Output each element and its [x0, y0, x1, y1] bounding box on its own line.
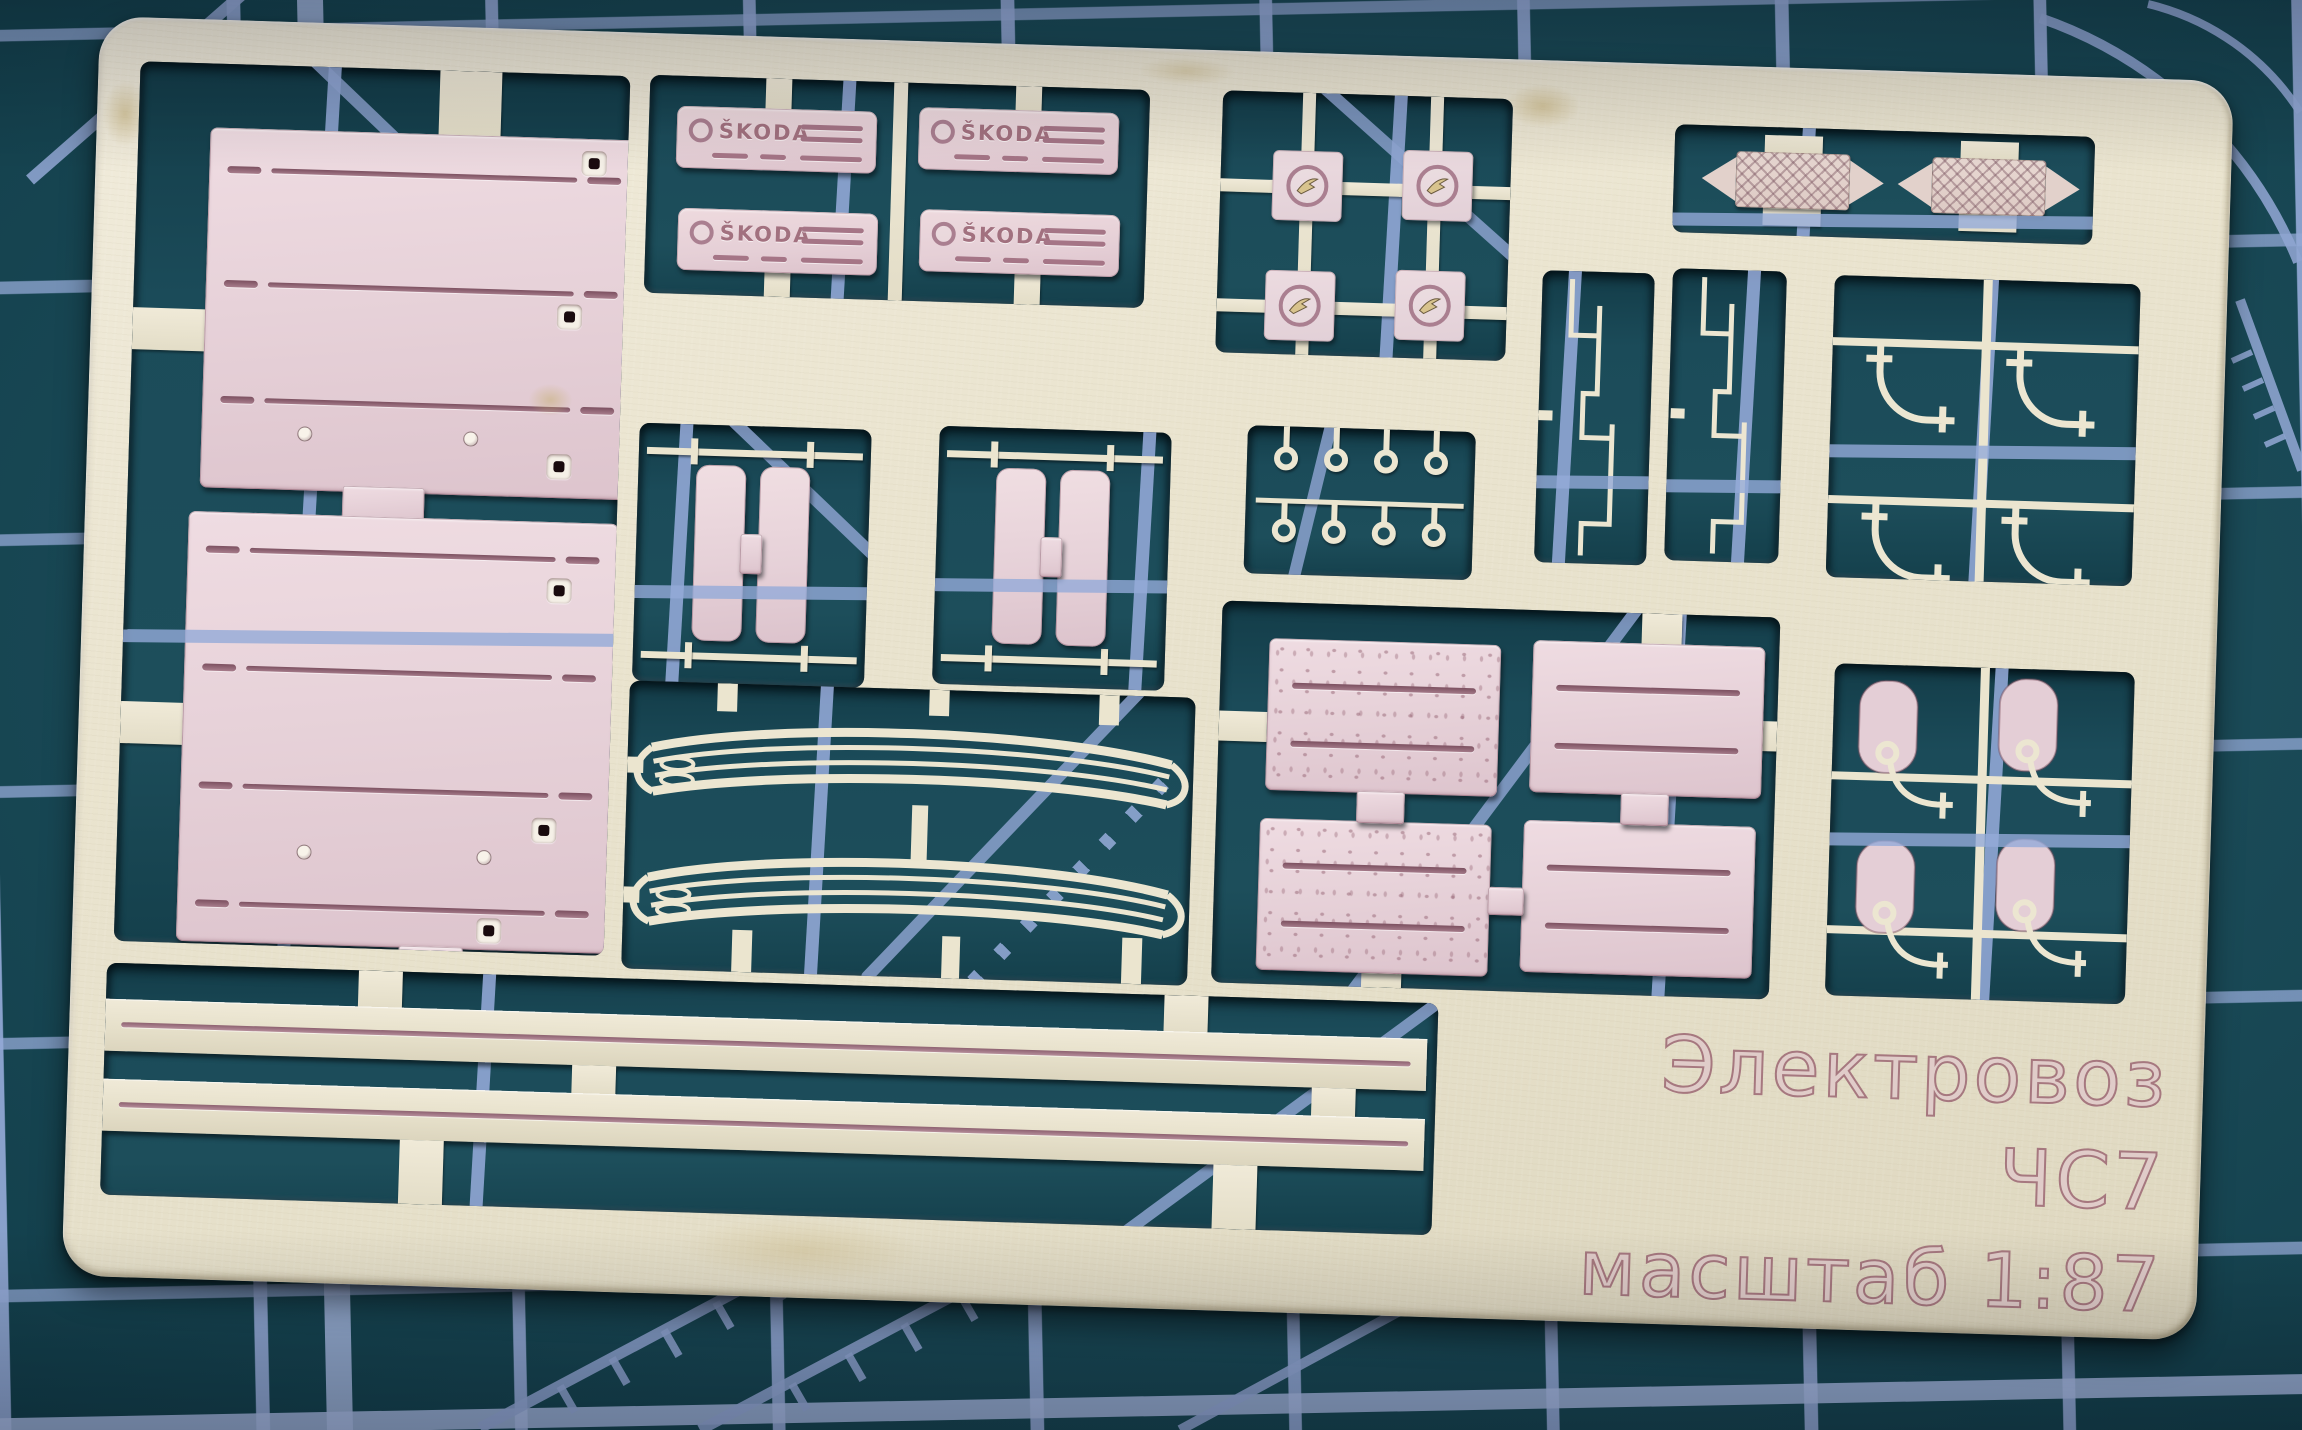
sprue-tick — [684, 642, 692, 668]
cutout-builder-plates: ŠKODA ŠKODA ŠKODA — [644, 75, 1150, 308]
sprue-rail — [947, 450, 1163, 464]
plate-line — [1042, 157, 1104, 164]
cutout-wiper-pads — [1825, 663, 2135, 1004]
sprue-bar — [1975, 280, 1993, 582]
plate-line — [712, 153, 748, 159]
plate-line — [761, 256, 787, 262]
engraving-title: Электровоз ЧС7 масштаб 1:87 — [1461, 1008, 2170, 1335]
sprue-rail — [641, 651, 857, 665]
mat-diagonal-line — [1180, 1300, 1420, 1430]
builder-plate-text: ŠKODA — [718, 119, 811, 146]
sprue-tab — [571, 1065, 616, 1096]
groove-dash — [202, 663, 236, 671]
treadplate-wing — [2045, 167, 2080, 212]
groove — [1281, 920, 1465, 932]
sprue-tab — [731, 930, 752, 973]
treadplate-wing — [1849, 161, 1884, 206]
groove — [1292, 683, 1476, 695]
cutout-sill-strips — [100, 963, 1438, 1236]
strip-groove — [121, 1022, 1411, 1066]
treadplate-part — [1716, 134, 1869, 229]
cutout-zigzag-handrail — [1664, 268, 1787, 563]
sprue-tick — [1100, 649, 1108, 675]
sprue-tab — [1958, 213, 2017, 233]
plate-line — [1003, 258, 1029, 264]
h-frame-right-bar — [1055, 470, 1110, 647]
groove — [1556, 685, 1740, 697]
cutout-roof-panels — [114, 61, 631, 956]
wiper-pads-sprue — [1825, 663, 2135, 1004]
groove — [1554, 743, 1738, 755]
square-hole — [476, 918, 502, 944]
sprue-tab — [1762, 207, 1821, 227]
eyelet-pin — [1271, 518, 1296, 543]
panel-groove-row — [198, 781, 592, 800]
photoetch-fret-sheet: ŠKODA ŠKODA ŠKODA — [62, 16, 2234, 1341]
sprue-tab — [1538, 410, 1552, 420]
grab-handle-part — [1860, 500, 1952, 581]
groove — [1283, 863, 1467, 875]
sprue-rail — [941, 654, 1157, 668]
groove — [242, 784, 548, 798]
sprue-tab — [1014, 272, 1041, 305]
sprue-tab — [398, 1140, 444, 1205]
groove-dash — [224, 280, 258, 288]
skoda-winged-arrow-icon — [1416, 164, 1459, 207]
grab-handle-part — [2000, 504, 2092, 585]
stain — [1505, 83, 1580, 129]
h-frame-right-bar — [755, 466, 810, 643]
handrail-zigzag-part — [1666, 268, 1787, 563]
engraving-line2: масштаб 1:87 — [1461, 1214, 2164, 1336]
eyelet-pin — [1371, 521, 1396, 546]
square-hole — [546, 454, 572, 480]
builder-plate-text: ŠKODA — [719, 221, 812, 248]
builder-plate-text: ŠKODA — [961, 222, 1054, 249]
roof-panel-lower — [176, 511, 619, 954]
treadplate-part — [1912, 139, 2065, 234]
eyelet-stem — [1283, 426, 1290, 448]
radiator-grille-part — [632, 855, 1182, 937]
groove — [271, 168, 577, 182]
round-hole — [297, 426, 312, 441]
plate-line — [800, 155, 862, 162]
sprue-tab — [1670, 408, 1684, 418]
skoda-logo-icon — [688, 118, 713, 143]
sprue-bar — [888, 82, 909, 300]
groove — [246, 666, 552, 680]
skoda-logo-square — [1264, 270, 1336, 342]
stain — [1138, 56, 1235, 87]
sprue-tab — [941, 936, 960, 979]
sprue-tab — [358, 970, 403, 1009]
h-frame-crossbar — [1039, 537, 1062, 578]
plate-line — [713, 255, 749, 261]
plate-line — [954, 154, 990, 160]
groove-dash — [565, 556, 599, 564]
round-hole — [463, 431, 478, 446]
grilles-sprue — [621, 680, 1196, 985]
eyelet-stem — [1383, 429, 1390, 451]
sprue-tick — [984, 645, 992, 671]
panel-groove-row — [206, 545, 600, 564]
panel-neck — [397, 946, 462, 956]
groove — [239, 902, 545, 916]
groove-dash — [227, 166, 261, 174]
eyelet-pin — [1321, 520, 1346, 545]
sprue-tab — [132, 307, 209, 351]
sprue-tick — [991, 441, 999, 467]
vent-panel — [1529, 640, 1766, 799]
cutout-eyelet-pins — [1244, 425, 1476, 580]
h-frame-left-bar — [691, 464, 746, 641]
vent-panel — [1265, 638, 1502, 797]
h-frame-left-bar — [991, 468, 1046, 645]
sprue-tab — [1099, 695, 1120, 726]
groove-dash — [195, 899, 229, 907]
cutout-treadplates — [1672, 124, 2095, 245]
plate-line — [801, 258, 863, 265]
eyelet-pin — [1324, 448, 1349, 473]
sprue-tab — [1163, 995, 1208, 1034]
sprue-tab — [120, 701, 187, 745]
groove-dash — [198, 781, 232, 789]
groove-dash — [558, 792, 592, 800]
plate-line — [955, 256, 991, 262]
builder-plate: ŠKODA — [918, 107, 1120, 175]
groove — [1545, 923, 1729, 935]
eyelet-pin — [1421, 523, 1446, 548]
strip-groove — [119, 1102, 1409, 1146]
sprue-tab — [911, 805, 929, 861]
grab-handle-part — [1864, 342, 1957, 433]
sprue-tick — [691, 438, 699, 464]
eyelet-pin — [1274, 446, 1299, 471]
plate-line — [1043, 259, 1105, 266]
groove — [1547, 865, 1731, 877]
groove-dash — [587, 177, 621, 185]
handrail-wire — [1696, 277, 1748, 554]
winged-arrow-glyph — [1420, 168, 1455, 203]
groove — [268, 282, 574, 296]
plate-line — [1002, 156, 1028, 162]
panel-neck — [1356, 791, 1405, 824]
skoda-logo-icon — [689, 220, 714, 245]
vent-panel — [1255, 818, 1492, 977]
panel-groove-row — [227, 166, 621, 185]
skoda-logo-icon — [930, 119, 955, 144]
winged-arrow-glyph — [1290, 168, 1325, 203]
sprue-tab — [1641, 613, 1682, 646]
cutout-grab-handles — [1826, 275, 2141, 586]
sprue-bar — [1971, 668, 1990, 1000]
round-hole — [296, 844, 311, 859]
sprue-tick — [1107, 445, 1115, 471]
groove-dash — [562, 674, 596, 682]
photo-scene: ŠKODA ŠKODA ŠKODA — [0, 0, 2302, 1430]
grab-handles-sprue — [1826, 275, 2141, 586]
treadplate-surface — [1931, 157, 2047, 216]
square-hole — [546, 578, 572, 604]
handrail-zigzag-part — [1534, 270, 1655, 565]
eyelet-pin — [1374, 449, 1399, 474]
panel-neck — [1620, 793, 1669, 826]
winged-arrow-glyph — [1412, 288, 1447, 323]
sprue-tick — [807, 442, 815, 468]
h-frame-crossbar — [739, 534, 762, 575]
round-hole — [476, 850, 491, 865]
sprue-tab — [929, 690, 950, 717]
skoda-logo-square — [1271, 150, 1343, 222]
builder-plate-text: ŠKODA — [960, 120, 1053, 147]
roof-panel-upper — [200, 127, 631, 500]
groove-dash — [220, 396, 254, 404]
sprue-tab — [1311, 1088, 1356, 1119]
handrail-wire — [1564, 279, 1616, 556]
cutout-h-frame — [932, 426, 1172, 691]
panel-groove-row — [224, 280, 618, 299]
radiator-grille-part — [636, 725, 1186, 807]
groove-dash — [584, 291, 618, 299]
panel-groove-row — [202, 663, 596, 682]
sprue-tab — [1218, 711, 1267, 742]
sill-strip — [104, 999, 1427, 1091]
skoda-logo-square — [1394, 270, 1466, 342]
engraving-line1: Электровоз ЧС7 — [1464, 1008, 2170, 1235]
sprue-tab — [627, 756, 643, 772]
skoda-logo-icon — [931, 222, 956, 247]
skoda-winged-arrow-icon — [1286, 164, 1329, 207]
sprue-tab — [623, 886, 639, 902]
sprue-tab — [438, 70, 502, 140]
sprue-tab — [1211, 1165, 1257, 1230]
sprue-tab — [717, 683, 738, 712]
panel-neck — [1487, 887, 1524, 916]
treadplate-wing — [1701, 156, 1736, 201]
sill-strip — [102, 1079, 1425, 1171]
square-hole — [531, 818, 557, 844]
builder-plate: ŠKODA — [676, 106, 878, 174]
grab-handle-part — [2004, 346, 2097, 437]
skoda-winged-arrow-icon — [1408, 284, 1451, 327]
builder-plate: ŠKODA — [677, 208, 879, 276]
cutout-grilles — [621, 680, 1196, 985]
panel-groove-row — [195, 899, 589, 918]
groove — [250, 548, 556, 562]
skoda-winged-arrow-icon — [1278, 284, 1321, 327]
eyelet-stem — [1433, 431, 1440, 453]
groove-dash — [555, 910, 589, 918]
vent-panel — [1519, 820, 1756, 979]
treadplate-wing — [1897, 162, 1932, 207]
square-hole — [557, 304, 583, 330]
groove-dash — [206, 545, 240, 553]
sprue-tab — [765, 78, 792, 111]
builder-plate: ŠKODA — [919, 209, 1121, 277]
stain — [682, 1214, 924, 1285]
treadplate-surface — [1735, 151, 1851, 210]
groove-dash — [580, 407, 614, 415]
groove — [1290, 741, 1474, 753]
plate-line — [760, 154, 786, 160]
cutout-zigzag-handrail — [1534, 270, 1655, 565]
eyelet-pin — [1424, 451, 1449, 476]
cutout-vent-panels — [1211, 601, 1780, 1000]
eyelet-stem — [1333, 428, 1340, 450]
cutout-h-frame — [632, 423, 872, 688]
cutout-logo-squares — [1215, 90, 1513, 361]
winged-arrow-glyph — [1282, 288, 1317, 323]
groove — [264, 398, 570, 412]
square-hole — [581, 151, 607, 177]
skoda-logo-square — [1401, 150, 1473, 222]
sprue-tick — [800, 646, 808, 672]
sprue-tab — [1121, 938, 1142, 985]
